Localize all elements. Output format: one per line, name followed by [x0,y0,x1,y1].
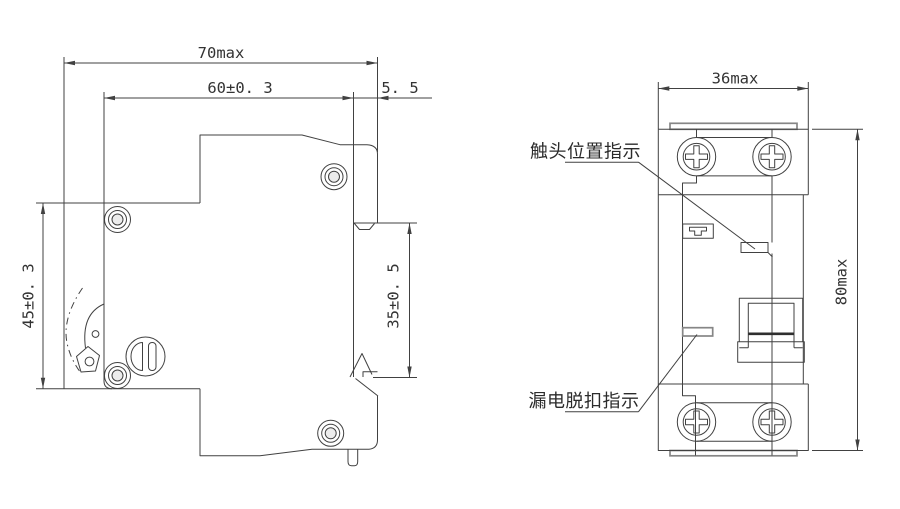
dimension-70max: 70max [64,44,378,65]
bottom-mounting-plate [670,451,797,456]
terminal-strip-edges [697,138,773,442]
clip-pull-tab [348,449,358,465]
contact-position-label: 触头位置指示 [530,142,641,163]
latch-pawl [77,347,100,373]
callout-contact-position: 触头位置指示 [530,142,755,250]
left-pole-line [683,176,697,456]
dimension-36max: 36max [658,70,808,130]
body-top-edge [200,135,378,223]
breaker-dimension-drawing: 70max 60±0. 3 5. 5 45±0. 3 35±0. 5 [0,0,900,509]
side-view-drawing: 70max 60±0. 3 5. 5 45±0. 3 35±0. 5 [20,44,433,466]
rail-clip-notch [363,372,378,377]
rail-clip-slope [356,379,379,397]
body-bottom-edge [200,389,378,456]
rivet-bottom-right [318,420,344,446]
lever-pivot-hole [92,331,99,338]
callout-leakage-trip: 漏电脱扣指示 [529,335,698,413]
slotted-screw-head [126,337,165,376]
terminal-screw-top-right [753,138,791,176]
leakage-trip-label: 漏电脱扣指示 [529,391,640,412]
rivet-top-left [105,207,131,233]
dim-5_5-text: 5. 5 [381,79,418,97]
handle-swing-arc [66,288,82,373]
top-mounting-plate [670,123,797,129]
rivet-top-right [321,164,347,190]
latch-lever-arc [85,304,104,348]
test-marking-window [683,224,714,238]
pawl-hole [85,357,94,366]
terminal-screw-top-left [677,138,715,176]
dim-35-text: 35±0. 5 [385,263,403,328]
dimension-45: 45±0. 3 [20,203,46,389]
dim-80max-text: 80max [833,259,851,306]
dim-70max-text: 70max [198,44,245,62]
leakage-trip-indicator-window [683,328,713,336]
escutcheon-face-line [104,92,112,389]
dim-36max-text: 36max [712,70,759,88]
screw-slot-right [149,343,157,371]
dimension-80max: 80max [812,129,863,450]
dim-45-text: 45±0. 3 [20,263,38,328]
front-view-drawing: 36max 80max 触头位置指示 漏电脱扣指示 [529,70,864,456]
top-centerline-stubs [697,130,773,138]
terminal-screw-bottom-left [677,403,715,441]
toggle-handle[interactable] [738,298,805,362]
rail-lip-chamfer [354,223,375,230]
rivet-bottom-left [105,363,131,389]
contact-position-indicator-window [741,243,773,258]
dimension-60-and-5_5: 60±0. 3 5. 5 [104,79,432,100]
technical-drawing-page: 70max 60±0. 3 5. 5 45±0. 3 35±0. 5 [0,0,900,509]
dimension-35: 35±0. 5 [385,223,412,378]
dim-60-text: 60±0. 3 [207,79,272,97]
screw-slot-left [131,343,143,371]
